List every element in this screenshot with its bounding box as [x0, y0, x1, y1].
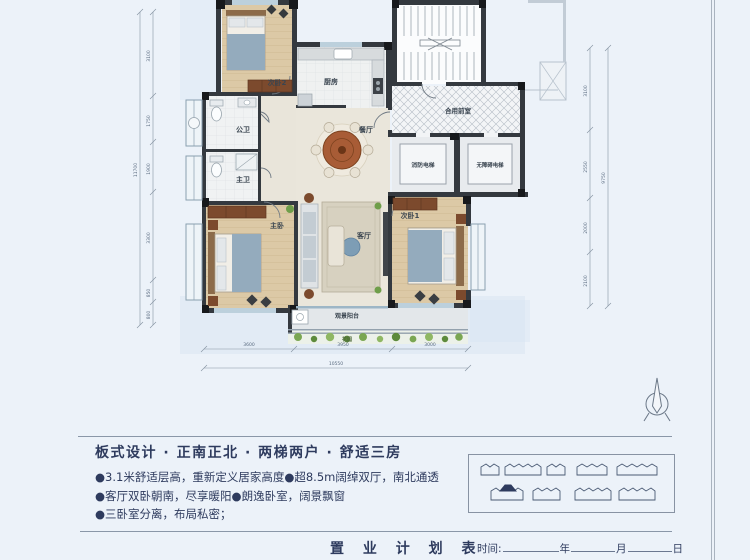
floor-plan: 次卧2 厨房 公卫 主卫 主卧 餐厅 客厅 次卧1 合用前室 消防电梯 无障碍电…: [0, 0, 750, 430]
living-room-furniture: [301, 193, 388, 299]
label-bath-master: 主卫: [236, 175, 250, 184]
svg-text:3600: 3600: [243, 342, 255, 348]
svg-text:3100: 3100: [146, 50, 152, 62]
svg-text:800: 800: [146, 311, 152, 320]
time-label: 时间:: [477, 543, 502, 555]
page-edge-line: [711, 0, 712, 560]
svg-text:11700: 11700: [133, 163, 139, 177]
neighbor-unit-outline: [525, 0, 566, 100]
date-blank-month: [571, 542, 615, 552]
label-master: 主卧: [270, 221, 284, 230]
label-garden: 花园: [342, 336, 352, 343]
month-label: 月: [616, 543, 627, 555]
selling-point: ●客厅双卧朝南，尽享暖阳●朗逸卧室，阔景飘窗: [95, 487, 439, 506]
selling-point: ●三卧室分离，布局私密；: [95, 505, 439, 524]
highlighted-building: [500, 485, 516, 491]
north-compass-icon: [644, 378, 670, 421]
label-bath-public: 公卫: [236, 126, 250, 134]
svg-text:10550: 10550: [329, 361, 343, 367]
label-dining: 餐厅: [358, 125, 373, 134]
selling-points-title: 板式设计 · 正南正北 · 两梯两户 · 舒适三房: [95, 442, 402, 462]
date-blank-day: [628, 542, 672, 552]
svg-text:1750: 1750: [146, 115, 152, 127]
day-label: 日: [673, 543, 684, 555]
label-elevator-fire: 消防电梯: [411, 161, 434, 169]
plan-table-title: 置 业 计 划 表: [330, 538, 483, 558]
svg-text:9750: 9750: [601, 172, 607, 184]
label-living: 客厅: [356, 231, 371, 240]
building-outline-row2: [491, 488, 655, 500]
label-balcony: 观景阳台: [335, 312, 359, 320]
svg-text:3000: 3000: [424, 342, 436, 348]
year-label: 年: [560, 543, 571, 555]
svg-text:2000: 2000: [583, 222, 589, 234]
svg-text:3950: 3950: [337, 342, 349, 348]
label-kitchen: 厨房: [324, 77, 338, 86]
key-plan-buildings: [469, 455, 672, 510]
svg-text:3300: 3300: [146, 232, 152, 244]
date-blank-year: [503, 542, 559, 552]
svg-text:2550: 2550: [583, 161, 589, 173]
flyer-page: 次卧2 厨房 公卫 主卫 主卧 餐厅 客厅 次卧1 合用前室 消防电梯 无障碍电…: [0, 0, 750, 560]
label-bedroom2: 次卧2: [268, 78, 287, 87]
building-location-key: [468, 454, 675, 513]
svg-text:2100: 2100: [583, 275, 589, 287]
building-outline-row1: [481, 464, 657, 475]
svg-text:1900: 1900: [146, 163, 152, 175]
label-bedroom1: 次卧1: [401, 211, 420, 220]
selling-point: ●3.1米舒适层高，重新定义居家高度●超8.5m阔绰双厅，南北通透: [95, 468, 439, 487]
divider-bottom: [80, 531, 672, 532]
label-elevator-barrier-free: 无障碍电梯: [477, 161, 505, 169]
svg-text:3100: 3100: [583, 85, 589, 97]
divider-top: [78, 436, 672, 437]
page-edge-line: [714, 0, 715, 560]
selling-points-list: ●3.1米舒适层高，重新定义居家高度●超8.5m阔绰双厅，南北通透 ●客厅双卧朝…: [95, 468, 439, 524]
label-lobby: 合用前室: [444, 106, 472, 115]
svg-text:850: 850: [146, 289, 152, 298]
date-fill-in-line: 时间:年月日: [477, 541, 683, 556]
